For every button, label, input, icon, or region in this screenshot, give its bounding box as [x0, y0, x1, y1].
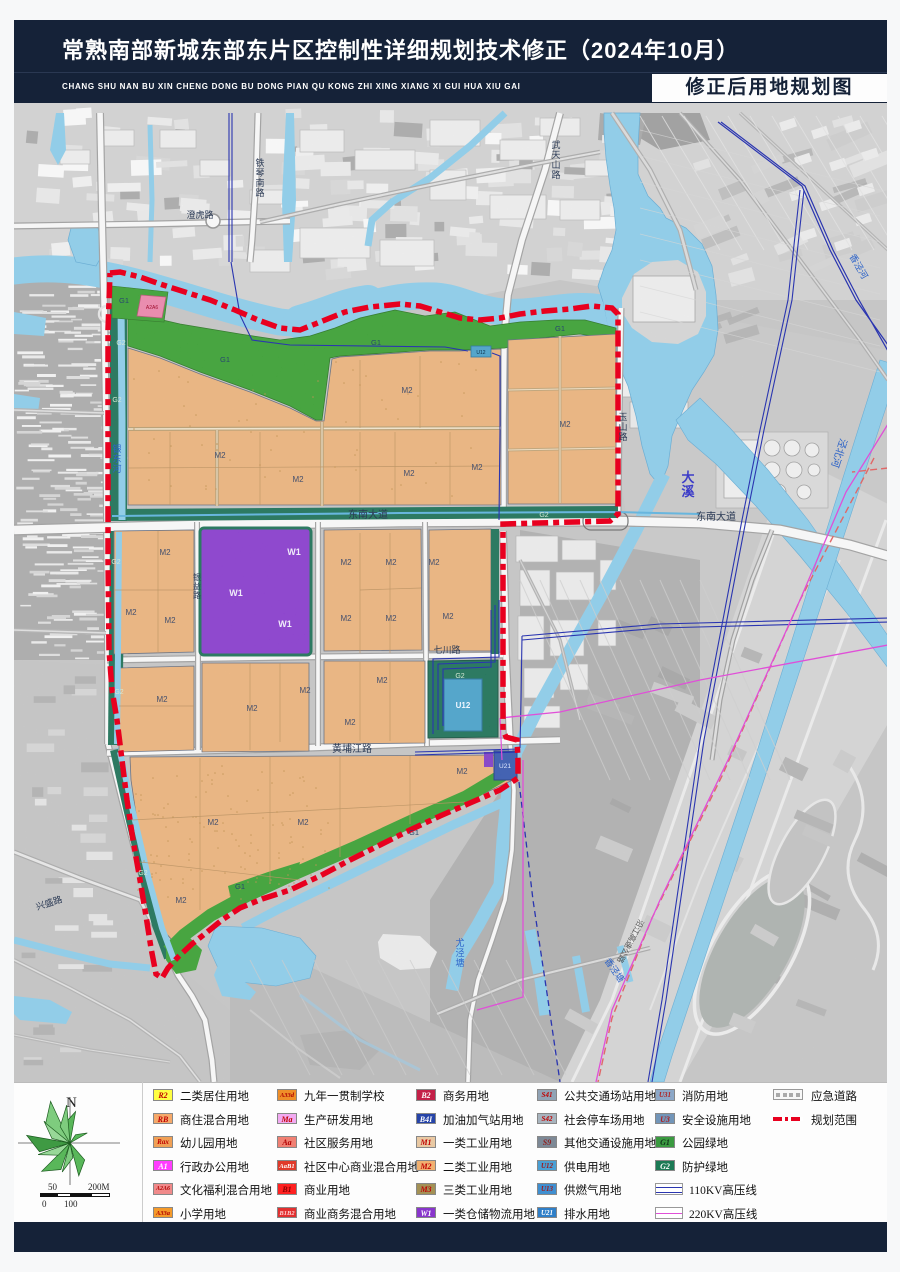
svg-text:M2: M2 — [246, 704, 258, 713]
svg-text:W1: W1 — [229, 588, 243, 598]
svg-text:大: 大 — [681, 470, 694, 485]
svg-text:M2: M2 — [385, 614, 397, 623]
svg-text:U12: U12 — [456, 701, 471, 710]
svg-text:益: 益 — [193, 581, 201, 591]
svg-text:N: N — [66, 1095, 77, 1111]
svg-text:M2: M2 — [175, 896, 187, 905]
svg-text:河: 河 — [112, 463, 121, 474]
svg-text:M2: M2 — [471, 463, 483, 472]
svg-text:G1: G1 — [409, 828, 419, 837]
svg-text:M2: M2 — [442, 612, 454, 621]
svg-text:七川路: 七川路 — [433, 644, 460, 655]
svg-text:G1: G1 — [555, 324, 565, 333]
svg-text:G1: G1 — [220, 355, 230, 364]
svg-text:路: 路 — [551, 169, 560, 180]
svg-text:M2: M2 — [207, 818, 219, 827]
svg-text:塘: 塘 — [455, 957, 464, 968]
svg-text:G2: G2 — [539, 512, 548, 519]
svg-text:路: 路 — [255, 187, 264, 198]
svg-text:银: 银 — [112, 443, 121, 454]
svg-text:G1: G1 — [371, 338, 381, 347]
svg-text:U12: U12 — [476, 350, 485, 356]
svg-text:M2: M2 — [297, 818, 309, 827]
svg-text:M2: M2 — [292, 475, 304, 484]
svg-text:铁: 铁 — [255, 157, 264, 168]
svg-text:M2: M2 — [401, 386, 413, 395]
svg-text:山: 山 — [618, 422, 627, 432]
svg-text:路: 路 — [618, 431, 627, 442]
svg-text:M2: M2 — [340, 614, 352, 623]
svg-text:武: 武 — [551, 139, 560, 150]
svg-text:M2: M2 — [125, 608, 137, 617]
svg-text:澄虎路: 澄虎路 — [186, 209, 213, 220]
svg-text:东: 东 — [112, 453, 121, 464]
svg-text:G2: G2 — [116, 340, 125, 347]
svg-text:G1: G1 — [119, 296, 129, 305]
svg-text:黄埔江路: 黄埔江路 — [332, 742, 372, 755]
svg-text:W1: W1 — [287, 547, 301, 557]
svg-text:A2A6: A2A6 — [146, 305, 158, 311]
svg-text:溪: 溪 — [681, 484, 695, 499]
svg-text:琴: 琴 — [255, 168, 264, 178]
svg-text:尤: 尤 — [455, 937, 464, 948]
svg-text:银: 银 — [193, 572, 201, 582]
svg-text:W1: W1 — [278, 619, 292, 629]
svg-text:泾: 泾 — [455, 947, 464, 958]
svg-text:M2: M2 — [156, 695, 168, 704]
svg-text:G2: G2 — [111, 559, 120, 566]
svg-text:M2: M2 — [299, 686, 311, 695]
svg-text:M2: M2 — [456, 767, 468, 776]
svg-text:东南大道: 东南大道 — [348, 508, 388, 521]
svg-text:南: 南 — [255, 177, 264, 188]
svg-text:G2: G2 — [455, 673, 464, 680]
svg-text:山: 山 — [551, 160, 560, 170]
svg-text:M2: M2 — [403, 469, 415, 478]
svg-text:玉: 玉 — [618, 412, 627, 422]
svg-text:M2: M2 — [428, 558, 440, 567]
svg-text:U21: U21 — [499, 763, 511, 770]
svg-text:天: 天 — [551, 150, 560, 160]
svg-text:路: 路 — [193, 590, 201, 600]
svg-text:G2: G2 — [114, 689, 123, 696]
svg-text:M2: M2 — [376, 676, 388, 685]
svg-text:M2: M2 — [214, 451, 226, 460]
svg-text:M2: M2 — [344, 718, 356, 727]
svg-text:G2: G2 — [138, 870, 147, 877]
svg-text:G2: G2 — [112, 397, 121, 404]
svg-text:G1: G1 — [235, 882, 245, 891]
svg-text:东南大道: 东南大道 — [696, 510, 736, 523]
svg-text:M2: M2 — [559, 420, 571, 429]
svg-text:M2: M2 — [340, 558, 352, 567]
svg-text:M2: M2 — [385, 558, 397, 567]
svg-text:M2: M2 — [164, 616, 176, 625]
svg-text:M2: M2 — [159, 548, 171, 557]
